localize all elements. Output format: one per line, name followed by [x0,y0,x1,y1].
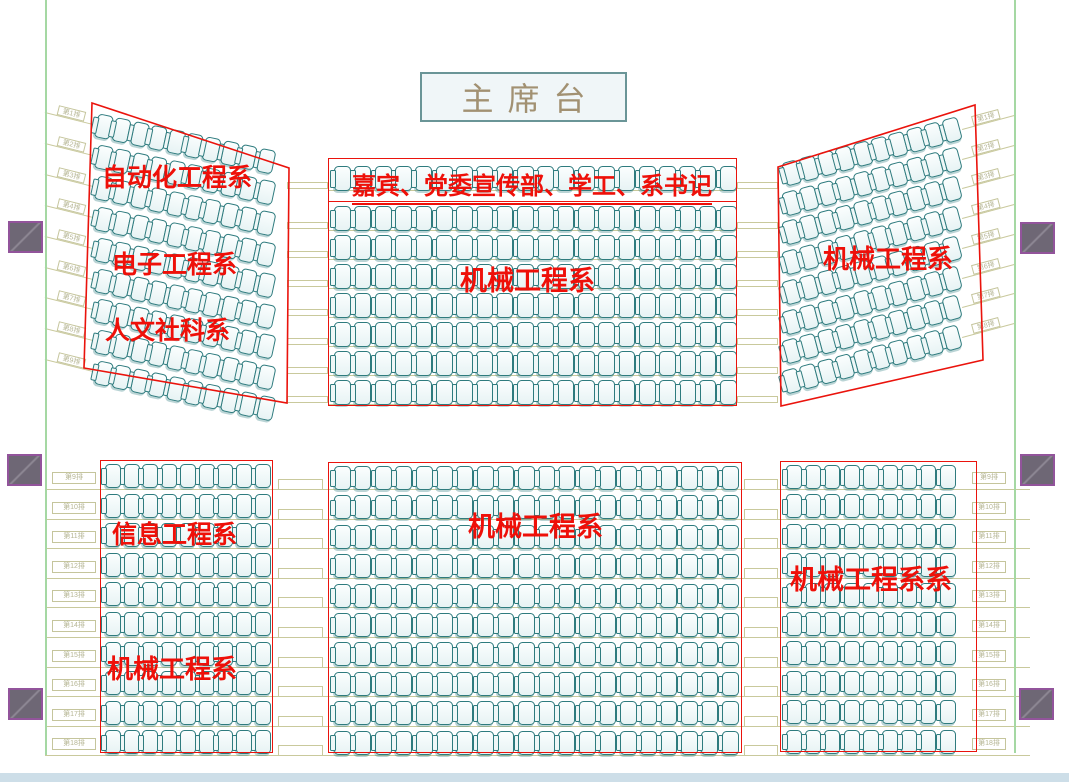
row-extension-line: 第3排 [962,174,1014,189]
section-outline-upper-center [328,201,737,406]
aisle-step [744,509,778,520]
section-label: 电子工程系 [112,252,237,281]
aisle-step [737,396,778,403]
seat [255,271,276,298]
aisle-step [278,716,323,727]
aisle-step [287,182,328,189]
section-label: 机械工程系 [468,512,603,543]
aisle-step [744,568,778,579]
row-extension-line: 第8排 [45,328,97,342]
seat [941,324,963,351]
seat [255,395,276,422]
seat [255,240,276,267]
row-tag: 第8排 [57,321,87,337]
seat [941,116,963,143]
aisle-step [278,538,323,549]
aisle-step [737,182,778,189]
column-pillar [1019,688,1054,720]
aisle-step [278,627,323,638]
row-tag: 第13排 [972,590,1006,602]
column-pillar [1020,454,1055,486]
section-outline-lower-center [328,462,742,753]
row-extension-line: 第8排 [962,323,1014,338]
row-tag: 第1排 [971,109,1001,126]
aisle-step [737,338,778,345]
aisle-step [737,222,778,229]
row-tag: 第14排 [52,620,96,632]
seat [255,148,276,175]
row-extension-line: 第7排 [962,293,1014,308]
seat [941,206,963,233]
row-tag: 第3排 [971,168,1001,185]
section-label: 人文社科系 [105,318,230,347]
aisle-step [737,251,778,258]
seat [255,209,276,236]
row-tag: 第6排 [57,260,87,276]
row-tag: 第18排 [972,738,1006,750]
row-tag: 第11排 [972,531,1006,543]
aisle-step [278,568,323,579]
row-extension-line: 第1排 [962,115,1014,130]
aisle-step [278,745,323,756]
section-label: 机械工程系系 [790,565,952,596]
row-tag: 第7排 [971,287,1001,304]
row-tag: 第1排 [57,105,87,121]
row-tag: 第12排 [972,561,1006,573]
row-tag: 第13排 [52,590,96,602]
row-tag: 第16排 [972,679,1006,691]
aisle-step [744,657,778,668]
row-line [45,755,1030,756]
row-tag: 第4排 [57,198,87,214]
row-extension-line: 第5排 [962,234,1014,249]
row-tag: 第15排 [972,650,1006,662]
row-extension-line: 第1排 [45,112,97,126]
row-tag: 第5排 [971,228,1001,245]
row-tag: 第7排 [57,291,87,307]
aisle-step [287,280,328,287]
row-extension-line: 第7排 [45,297,97,311]
seat [255,179,276,206]
row-tag: 第16排 [52,679,96,691]
aisle-step [278,657,323,668]
row-tag: 第9排 [57,352,87,368]
row-extension-line: 第3排 [45,174,97,188]
column-pillar [8,688,43,720]
section-outline-lower-right [780,461,977,752]
row-tag: 第17排 [52,709,96,721]
section-outline-lower-left [100,460,273,753]
row-tag: 第9排 [972,472,1006,484]
aisle-step [744,745,778,756]
aisle-step [737,367,778,374]
seat [255,333,276,360]
row-tag: 第14排 [972,620,1006,632]
row-extension-line: 第2排 [45,143,97,157]
row-tag: 第6排 [971,257,1001,274]
row-tag: 第2排 [57,136,87,152]
bottom-strip [0,773,1069,782]
aisle-step [287,367,328,374]
column-pillar [1020,222,1055,254]
aisle-step [744,627,778,638]
section-label: 机械工程系 [460,266,595,297]
aisle-step [278,509,323,520]
aisle-step [744,686,778,697]
stage-label: 主席台 [447,74,599,120]
row-tag: 第5排 [57,229,87,245]
seat [941,295,963,322]
section-label: 嘉宾、党委宣传部、学工、系书记 [352,174,712,205]
aisle-step [287,309,328,316]
row-extension-line: 第2排 [962,145,1014,160]
aisle-step [744,479,778,490]
aisle-step [287,222,328,229]
column-pillar [8,221,43,253]
section-label: 机械工程系 [107,655,237,685]
row-extension-line: 第4排 [962,204,1014,219]
row-tag: 第4排 [971,198,1001,215]
aisle-step [744,538,778,549]
row-extension-line: 第5排 [45,236,97,250]
aisle-step [287,396,328,403]
aisle-step [744,716,778,727]
row-extension-line: 第6排 [45,267,97,281]
row-tag: 第8排 [971,317,1001,334]
row-extension-line: 第6排 [962,264,1014,279]
section-label: 信息工程系 [112,522,237,551]
section-label: 自动化工程系 [102,165,252,194]
row-tag: 第10排 [972,502,1006,514]
boundary-line [1014,0,1016,753]
aisle-step [737,309,778,316]
row-tag: 第9排 [52,472,96,484]
row-extension-line: 第9排 [45,359,97,373]
aisle-step [287,338,328,345]
aisle-step [278,686,323,697]
section-label: 机械工程系 [823,245,953,275]
seat [941,176,963,203]
row-extension-line: 第4排 [45,205,97,219]
seat [941,146,963,173]
row-tag: 第2排 [971,139,1001,156]
aisle-step [278,479,323,490]
boundary-line [45,0,47,755]
row-tag: 第11排 [52,531,96,543]
aisle-step [287,251,328,258]
seat [255,302,276,329]
seating-plan-canvas: 主席台 第9排第10排第11排第12排第13排第14排第15排第16排第17排第… [0,0,1069,782]
row-tag: 第12排 [52,561,96,573]
aisle-step [737,280,778,287]
stage-box: 主席台 [420,72,627,122]
column-pillar [7,454,42,486]
row-tag: 第17排 [972,709,1006,721]
row-tag: 第15排 [52,650,96,662]
aisle-step [278,597,323,608]
aisle-step [744,597,778,608]
row-tag: 第10排 [52,502,96,514]
row-tag: 第18排 [52,738,96,750]
seat [255,364,276,391]
row-tag: 第3排 [57,167,87,183]
